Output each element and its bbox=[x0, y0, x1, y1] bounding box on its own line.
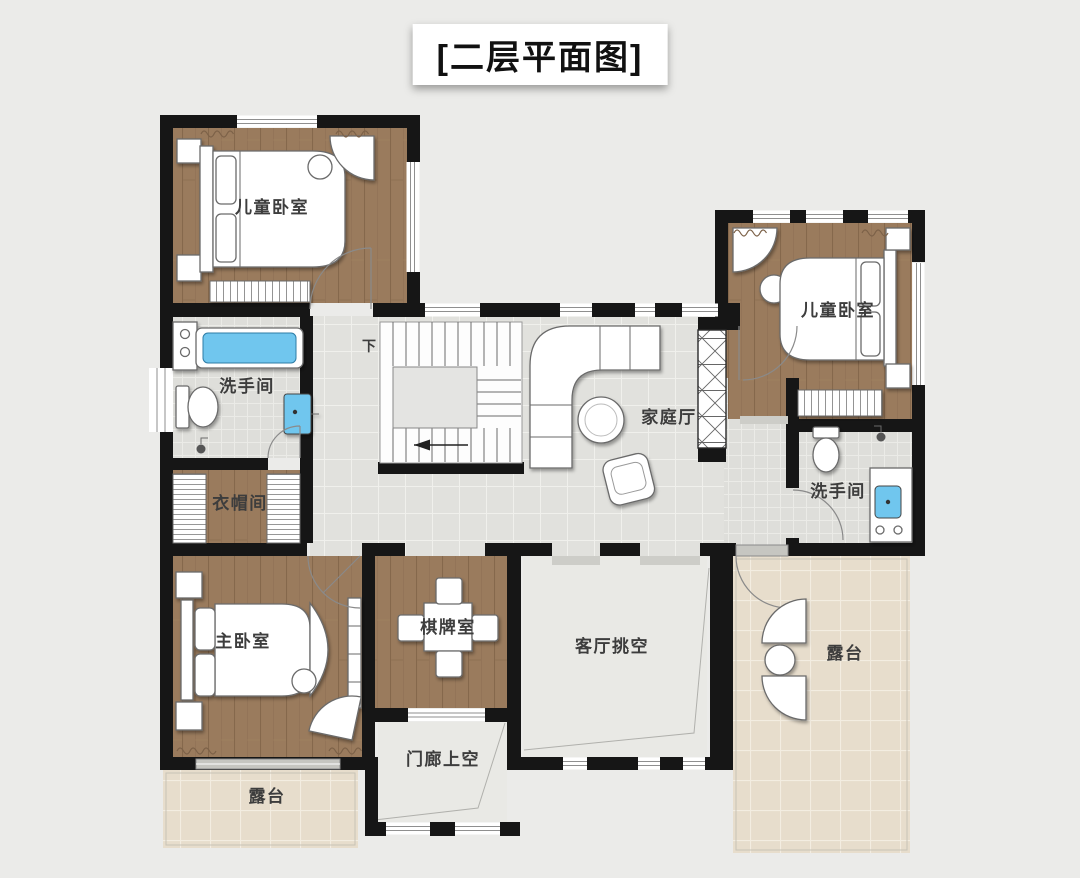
room-living-void: 客厅挑空 bbox=[574, 636, 649, 656]
nightstand bbox=[886, 228, 910, 250]
toilet-tank bbox=[813, 427, 839, 438]
terrace-table bbox=[765, 645, 795, 675]
window bbox=[237, 116, 317, 128]
window bbox=[386, 823, 430, 835]
window bbox=[753, 211, 790, 223]
living-void-label: 客厅挑空 bbox=[574, 636, 649, 656]
nightstand bbox=[177, 139, 201, 163]
pillow bbox=[216, 156, 236, 204]
pillow bbox=[195, 608, 215, 650]
dresser bbox=[798, 390, 882, 416]
pillow bbox=[195, 654, 215, 696]
side-table bbox=[292, 669, 316, 693]
terrace-bottom-floor bbox=[163, 770, 358, 848]
master-bedroom-label: 主卧室 bbox=[215, 631, 271, 651]
floor-plan-page: [二层平面图] bbox=[0, 0, 1080, 878]
porch-void-floor bbox=[378, 722, 507, 822]
dresser bbox=[210, 281, 310, 302]
wardrobe bbox=[267, 474, 300, 543]
family-hall-label: 家庭厅 bbox=[641, 407, 697, 427]
terrace-right-label: 露台 bbox=[827, 643, 864, 663]
bathroom-right-label: 洗手间 bbox=[810, 481, 866, 501]
wardrobe bbox=[173, 474, 206, 543]
terrace-right-floor bbox=[733, 556, 910, 853]
chair bbox=[436, 651, 462, 677]
room-terrace-bottom: 露台 bbox=[249, 786, 286, 806]
window-sill bbox=[552, 556, 600, 565]
children-bedroom-right-label: 儿童卧室 bbox=[800, 300, 875, 320]
lattice-cabinet bbox=[698, 330, 726, 448]
window bbox=[913, 263, 925, 385]
stool bbox=[308, 155, 332, 179]
window bbox=[425, 304, 480, 317]
door-threshold bbox=[740, 416, 788, 424]
staircase: 下 bbox=[362, 322, 522, 463]
children-bedroom-left-label: 儿童卧室 bbox=[234, 197, 309, 217]
window bbox=[806, 211, 843, 223]
bed-headboard bbox=[181, 600, 193, 700]
chair bbox=[436, 578, 462, 604]
window bbox=[407, 162, 420, 272]
nightstand bbox=[176, 572, 202, 598]
tv-cabinet bbox=[348, 598, 361, 708]
room-porch-void: 门廊上空 bbox=[406, 749, 480, 769]
living-void-floor bbox=[523, 556, 707, 757]
window bbox=[149, 368, 173, 432]
bed-headboard bbox=[200, 146, 213, 272]
window bbox=[868, 211, 908, 223]
nightstand bbox=[886, 364, 910, 388]
nightstand bbox=[176, 702, 202, 730]
toilet-tank bbox=[176, 386, 189, 428]
window bbox=[638, 758, 660, 770]
window bbox=[682, 304, 718, 317]
stair-landing bbox=[393, 367, 477, 428]
pillow bbox=[216, 214, 236, 262]
bed-headboard bbox=[884, 250, 896, 366]
bathtub-water bbox=[203, 333, 296, 363]
bathroom-left-label: 洗手间 bbox=[219, 376, 275, 396]
toilet bbox=[188, 387, 218, 427]
toilet bbox=[813, 438, 839, 472]
window bbox=[560, 304, 592, 317]
window bbox=[563, 758, 587, 770]
window bbox=[455, 823, 500, 835]
window bbox=[683, 758, 705, 770]
terrace-bottom-label: 露台 bbox=[249, 786, 286, 806]
terrace-door bbox=[736, 545, 788, 556]
chair bbox=[472, 615, 498, 641]
window bbox=[635, 304, 655, 317]
stairs-down-label: 下 bbox=[362, 338, 376, 354]
pillow bbox=[861, 262, 880, 306]
nightstand bbox=[177, 255, 201, 281]
window bbox=[408, 709, 485, 721]
window-sill bbox=[640, 556, 700, 565]
floor-plan: 儿童卧室 洗手间 衣帽间 bbox=[0, 0, 1080, 878]
chess-room-label: 棋牌室 bbox=[420, 617, 476, 637]
porch-void-label: 门廊上空 bbox=[406, 749, 480, 769]
cloakroom-label: 衣帽间 bbox=[212, 493, 268, 513]
